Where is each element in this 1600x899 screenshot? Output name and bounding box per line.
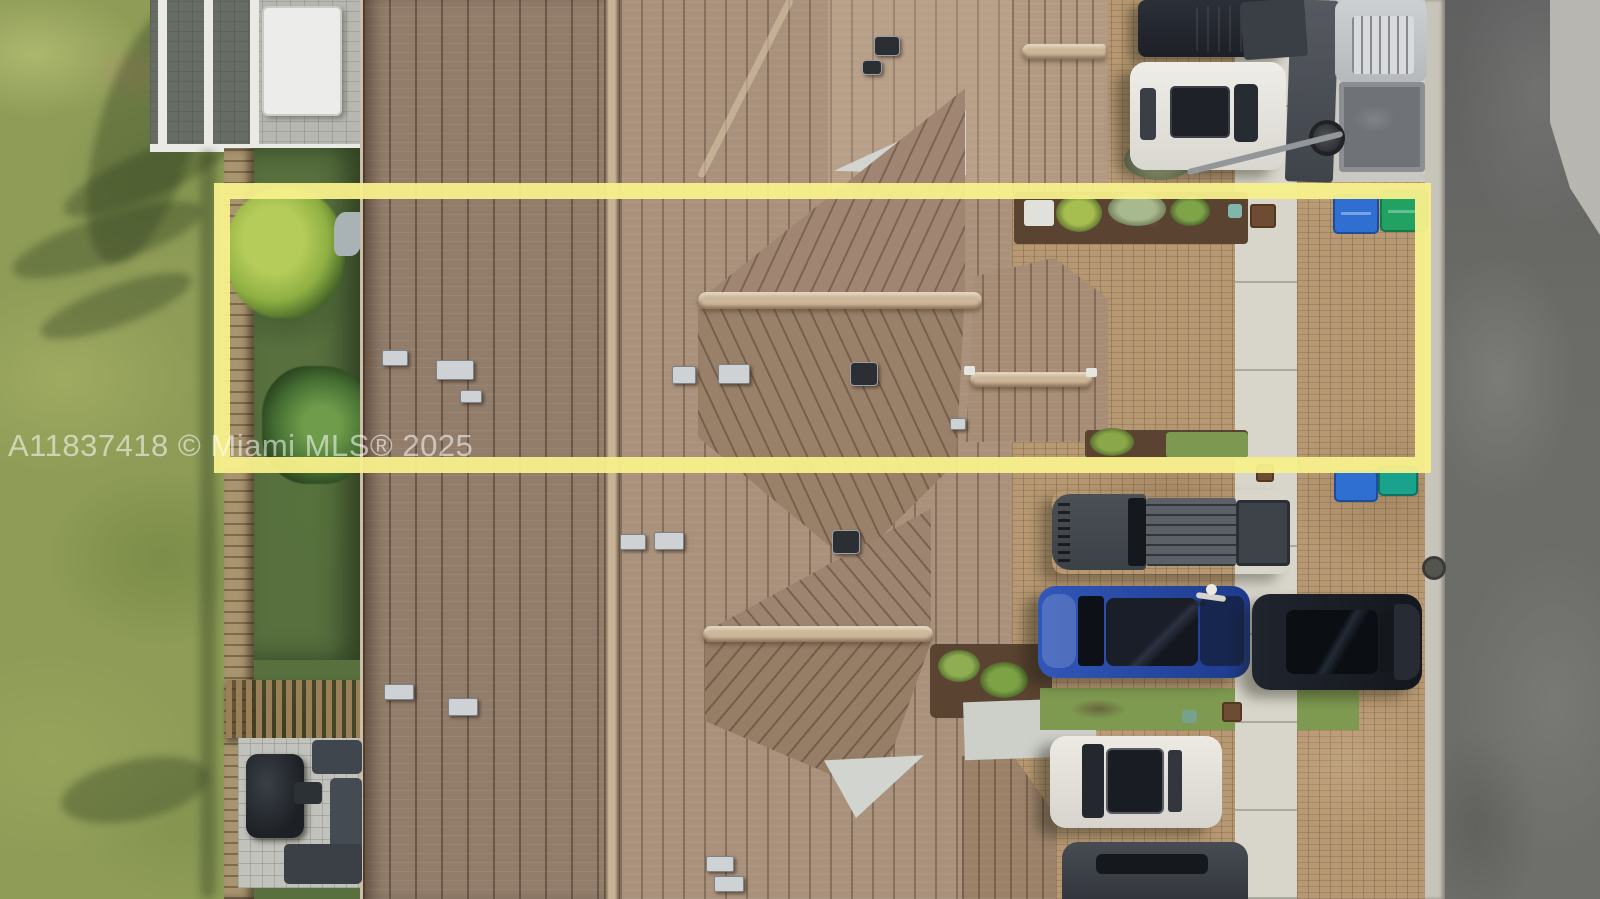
pickup-bed-cover	[1146, 498, 1236, 566]
silver-pickup-truck	[1335, 0, 1427, 172]
utility-box-brown	[1222, 702, 1242, 722]
patio-frame-beam	[204, 0, 213, 150]
sedan-sunroof	[1106, 748, 1164, 814]
person-standing	[1196, 584, 1240, 614]
dark-suv-bottom	[1062, 842, 1248, 899]
dark-car-glass-roof	[1286, 610, 1378, 674]
roof-vent-dark	[874, 36, 900, 56]
utility-lid-green	[1182, 710, 1197, 723]
parkway-grass-left	[1040, 688, 1235, 730]
blue-suv-hood-shine	[1042, 594, 1076, 668]
blue-bin-bottom	[1334, 470, 1378, 502]
outdoor-sofa	[284, 844, 362, 884]
manhole-cover	[1422, 556, 1446, 580]
suv-windshield	[1234, 84, 1258, 142]
dark-blue-car	[1252, 594, 1422, 690]
person-head	[1206, 584, 1217, 595]
dark-car-hood	[1394, 604, 1420, 680]
dark-car-windshield	[1380, 612, 1394, 672]
sedan-rear-window	[1168, 750, 1182, 812]
pickup-grille	[1058, 502, 1070, 562]
roof-vent	[448, 698, 478, 716]
roof-vent-dark	[862, 60, 882, 75]
blue-suv-windshield	[1078, 596, 1104, 666]
patio-table	[262, 6, 342, 116]
aerial-photo-stage: A11837418 © Miami MLS® 2025	[0, 0, 1600, 899]
roof-vent	[714, 876, 744, 892]
roof-vent	[620, 534, 646, 550]
truck-cab-louvers	[1352, 16, 1414, 74]
pickup-windshield	[1128, 498, 1146, 566]
parkway-grass-right	[1297, 690, 1359, 730]
gray-pickup-middle	[1052, 490, 1290, 574]
truck-cab	[1335, 0, 1427, 82]
screened-patio	[150, 0, 360, 152]
pergola	[226, 680, 364, 738]
truck-bed	[1339, 82, 1425, 172]
bush	[980, 662, 1028, 698]
roof-neighbor-top	[1012, 0, 1108, 196]
roof-vent	[706, 856, 734, 872]
suv-rear-window	[1140, 88, 1156, 140]
pickup-rear-rack	[1236, 500, 1290, 566]
patio-frame-beam	[158, 0, 167, 150]
patio-frame-beam	[250, 0, 259, 150]
patio-side-table	[294, 782, 322, 804]
outdoor-sofa	[312, 740, 362, 774]
roof-vent	[654, 532, 684, 550]
hip2-ridge-cap	[703, 626, 933, 642]
bush	[938, 650, 980, 682]
watermark-text: A11837418 © Miami MLS® 2025	[8, 428, 473, 464]
roof-vent-dark	[832, 530, 860, 554]
ridge-cap-top-right	[1022, 44, 1106, 59]
blue-suv-glass-roof	[1106, 598, 1198, 666]
sedan-windshield	[1082, 744, 1104, 818]
white-sedan	[1050, 736, 1222, 828]
trailer-front-dark	[1240, 0, 1308, 60]
roof-vent	[384, 684, 414, 700]
suv-sunroof	[1170, 86, 1230, 138]
dark-suv-windshield	[1096, 854, 1208, 874]
